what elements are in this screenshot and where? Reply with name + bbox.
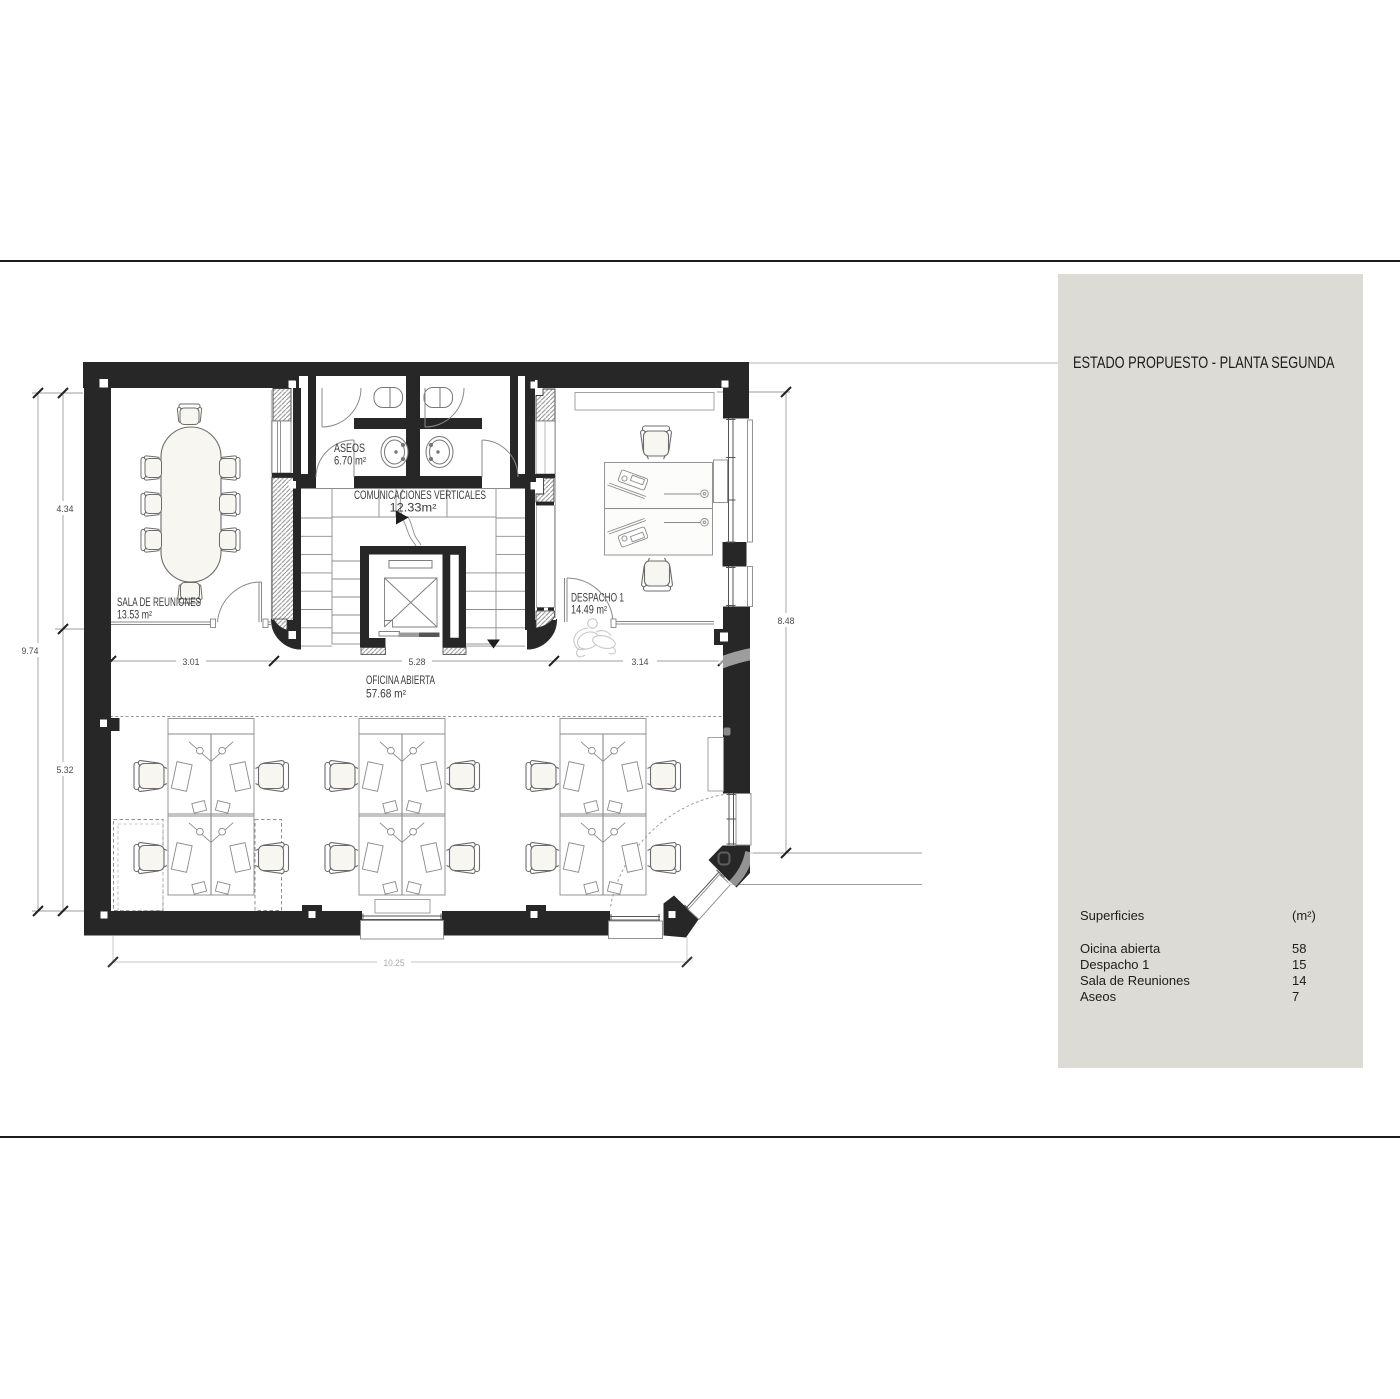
svg-text:57.68 m²: 57.68 m²	[366, 689, 406, 701]
svg-text:COMUNICACIONES VERTICALES: COMUNICACIONES VERTICALES	[354, 490, 486, 502]
svg-text:4.34: 4.34	[57, 504, 74, 514]
svg-text:5.32: 5.32	[57, 765, 74, 775]
svg-text:8.48: 8.48	[778, 616, 795, 626]
svg-text:OFICINA ABIERTA: OFICINA ABIERTA	[366, 675, 435, 687]
svg-text:5.28: 5.28	[409, 657, 426, 667]
svg-text:3.14: 3.14	[632, 657, 649, 667]
svg-text:10.25: 10.25	[384, 958, 405, 968]
svg-text:DESPACHO 1: DESPACHO 1	[571, 593, 624, 605]
svg-text:3.01: 3.01	[183, 657, 200, 667]
svg-text:13.53 m²: 13.53 m²	[117, 610, 152, 622]
svg-text:9.74: 9.74	[22, 646, 39, 656]
svg-text:SALA DE REUNIONES: SALA DE REUNIONES	[117, 597, 201, 609]
svg-text:ASEOS: ASEOS	[334, 443, 365, 455]
svg-text:6.70 m²: 6.70 m²	[334, 456, 366, 468]
svg-text:14.49 m²: 14.49 m²	[571, 605, 607, 617]
svg-text:12.33m²: 12.33m²	[390, 503, 437, 515]
